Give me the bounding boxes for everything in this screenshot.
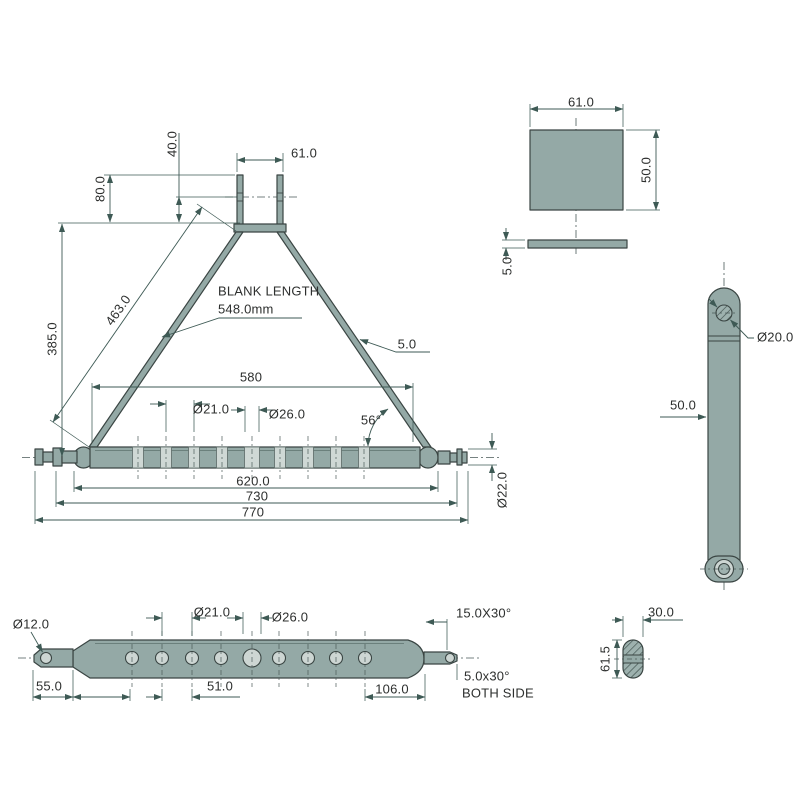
drawing-canvas: 40.0 61.0 80.0 385.0 463.0 BLANK LENGTH … (0, 0, 800, 800)
chamfer-both-side-note: BOTH SIDE (462, 686, 534, 701)
chamfer-pin-note: 5.0x30° (464, 669, 510, 684)
dim-bar-length-620: 620.0 (236, 474, 270, 489)
dim-leg-angle-56: 56° (361, 413, 381, 428)
dim-plate-height-50: 50.0 (639, 157, 654, 183)
dim-pin-length-55: 55.0 (36, 679, 62, 694)
dim-hole-large-bottom: Ø26.0 (272, 610, 308, 625)
bottom-view-geometry (18, 612, 480, 701)
dim-arm-width-50: 50.0 (670, 398, 696, 413)
dim-hole-pitch-51: 51.0 (207, 679, 233, 694)
dim-frame-height-385: 385.0 (45, 322, 60, 356)
dim-pin-hole-12: Ø12.0 (13, 617, 49, 632)
chamfer-end-note: 15.0X30° (456, 606, 511, 621)
dim-plate-width-61: 61.0 (568, 95, 594, 110)
dim-span-580: 580 (240, 370, 262, 385)
dim-pin-dia-22: Ø22.0 (495, 472, 510, 508)
section-view-geometry (612, 616, 683, 678)
blank-length-note: BLANK LENGTH (218, 284, 319, 299)
dim-mast-height-80: 80.0 (93, 176, 108, 202)
dim-hole-large-front: Ø26.0 (269, 407, 305, 422)
plate-view-geometry (502, 104, 660, 260)
blank-length-value: 548.0mm (218, 302, 274, 317)
dim-length-730: 730 (246, 489, 268, 504)
dim-overall-770: 770 (242, 505, 264, 520)
dim-section-height-61-5: 61.5 (598, 646, 613, 672)
dim-end-offset-106: 106.0 (375, 682, 409, 697)
dim-top-width-61: 61.0 (291, 146, 317, 161)
dim-top-slot-40: 40.0 (165, 131, 180, 157)
dim-arm-hole-20: Ø20.0 (757, 330, 793, 345)
dim-plate-thickness-5: 5.0 (500, 257, 515, 276)
arm-view-geometry (660, 262, 754, 592)
dim-leg-thickness-5: 5.0 (398, 337, 417, 352)
dim-section-width-30: 30.0 (648, 605, 674, 620)
dim-hole-small-front: Ø21.0 (193, 402, 229, 417)
dim-hole-small-bottom: Ø21.0 (194, 605, 230, 620)
